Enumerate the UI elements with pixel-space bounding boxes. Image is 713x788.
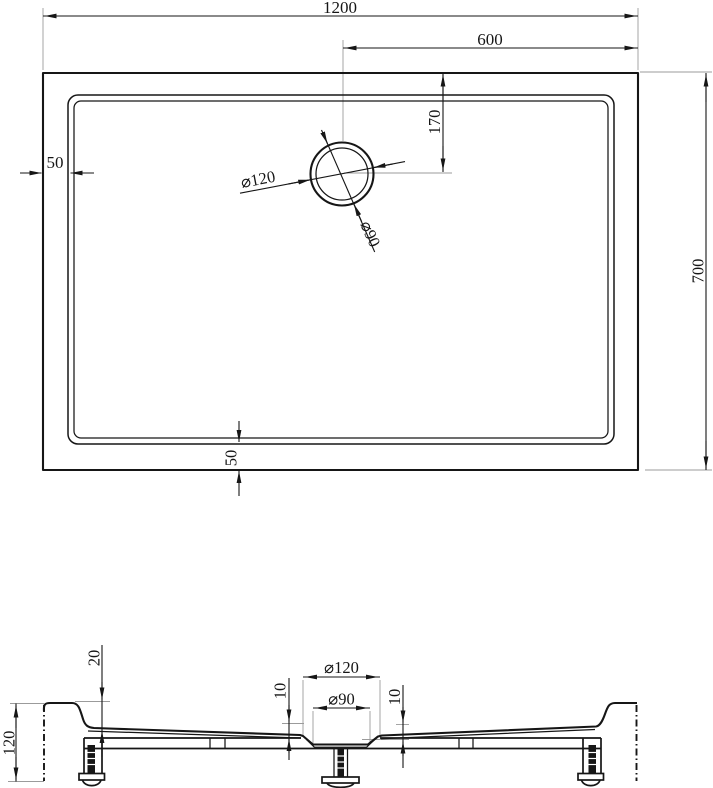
dim-drain-offset-y-label: 170 [425, 110, 444, 135]
dim-drain-inner-dia-label: ⌀90 [356, 218, 384, 250]
dim-rim-left-label: 50 [47, 153, 64, 172]
extension-lines [8, 8, 712, 782]
tray-outer-outline [43, 73, 638, 470]
right-foot-flange [578, 774, 604, 781]
dim-rim-bottom-label: 50 [222, 450, 241, 467]
dimension-labels: 1200 600 170 700 50 50 ⌀120 ⌀90 120 20 1… [0, 0, 708, 755]
dim-total-height-label: 120 [0, 731, 19, 756]
section-view [44, 703, 637, 787]
tray-rim-outline [68, 95, 614, 444]
dimension-lines [16, 16, 706, 782]
dim-rim-drop-label: 20 [85, 650, 104, 667]
top-view [43, 73, 638, 470]
dimension-arrows [16, 16, 706, 780]
dim-drain-outer-dia-label: ⌀120 [239, 167, 277, 192]
center-foot-flange [322, 777, 359, 783]
dim-recess-outer-dia-label: ⌀120 [324, 658, 359, 677]
dim-drain-offset-x-label: 600 [477, 30, 503, 49]
dim-step-right-label: 10 [385, 689, 404, 706]
dim-height-label: 700 [689, 259, 708, 284]
dim-width-label: 1200 [323, 0, 357, 17]
drawing-canvas: 1200 600 170 700 50 50 ⌀120 ⌀90 120 20 1… [0, 0, 713, 788]
left-foot-flange [79, 774, 105, 781]
dim-recess-inner-dia-label: ⌀90 [328, 690, 354, 709]
dim-step-left-label: 10 [271, 683, 290, 700]
tray-basin-outline [74, 101, 608, 438]
shower-tray-technical-drawing: 1200 600 170 700 50 50 ⌀120 ⌀90 120 20 1… [0, 0, 713, 788]
